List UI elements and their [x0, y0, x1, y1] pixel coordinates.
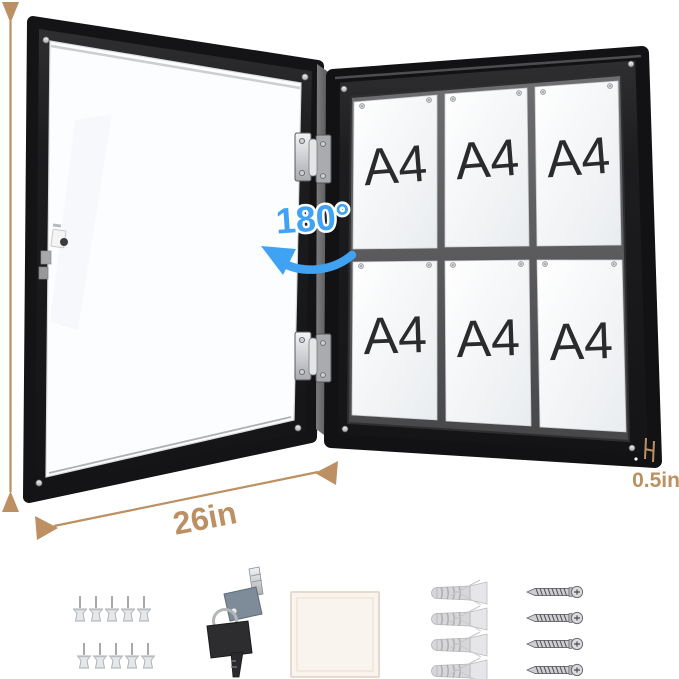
push-pin — [138, 596, 151, 621]
push-pin — [122, 596, 135, 621]
paper-pin — [360, 104, 365, 109]
a4-label: A4 — [361, 135, 429, 198]
push-pin — [106, 596, 119, 621]
arrowhead-up — [2, 2, 19, 23]
paper-pin — [517, 91, 522, 96]
paper-sheet: A4 — [445, 260, 531, 426]
push-pin — [110, 643, 123, 668]
screws — [527, 586, 583, 675]
corner-dot — [634, 457, 637, 460]
push-pin — [142, 643, 155, 668]
lock-knob — [60, 238, 68, 246]
screw — [527, 664, 583, 675]
paper-sheet: A4 — [445, 88, 529, 247]
paper-pin — [612, 262, 617, 267]
paper-pin — [427, 263, 432, 268]
push-pins — [74, 596, 155, 668]
paper-pin — [541, 90, 546, 95]
push-pin — [78, 643, 91, 668]
product-image: 28in A4 — [0, 0, 679, 679]
a4-label: A4 — [362, 306, 428, 366]
keys — [207, 567, 263, 677]
key-black — [207, 621, 252, 677]
paper-pin — [427, 98, 432, 103]
paper-pin — [543, 262, 548, 267]
paper-pin — [519, 262, 524, 267]
a4-label: A4 — [453, 129, 521, 192]
wall-anchor — [432, 606, 488, 631]
paper-pin — [451, 97, 456, 102]
paper-pin — [359, 264, 364, 269]
paper-sheet: A4 — [353, 95, 437, 249]
key-silver — [224, 567, 263, 621]
paper-pin — [451, 263, 456, 268]
wall-anchors — [432, 580, 488, 679]
wall-anchor — [432, 632, 488, 657]
a4-label: A4 — [548, 312, 614, 372]
adhesive-pad — [291, 592, 379, 677]
bulletin-board-diagram: 28in A4 — [0, 0, 679, 679]
width-dimension-label: 26in — [170, 494, 240, 542]
board-panel: A4 A4 A4 A4 — [316, 53, 655, 461]
arrowhead-down — [2, 491, 19, 512]
hinge-bottom — [295, 332, 331, 382]
paper-sheet: A4 — [535, 81, 621, 246]
a4-label: A4 — [455, 309, 521, 369]
arrowhead-right — [315, 461, 338, 485]
push-pin — [90, 596, 103, 621]
arrowhead-left — [35, 516, 58, 540]
wall-anchor — [432, 658, 488, 679]
push-pin — [126, 643, 139, 668]
hinge-top — [295, 133, 331, 183]
screw — [527, 638, 583, 649]
wall-anchor — [432, 580, 488, 605]
paper-pin — [608, 84, 613, 89]
swing-angle-label: 180° — [274, 195, 351, 241]
push-pin — [94, 643, 107, 668]
height-dimension-arrow — [2, 2, 19, 512]
paper-sheet: A4 — [352, 261, 437, 420]
push-pin — [74, 596, 87, 621]
screw — [527, 586, 583, 597]
paper-sheet: A4 — [537, 260, 626, 432]
screw — [527, 612, 583, 623]
a4-label: A4 — [544, 127, 612, 190]
thickness-label: 0.5in — [632, 469, 679, 492]
